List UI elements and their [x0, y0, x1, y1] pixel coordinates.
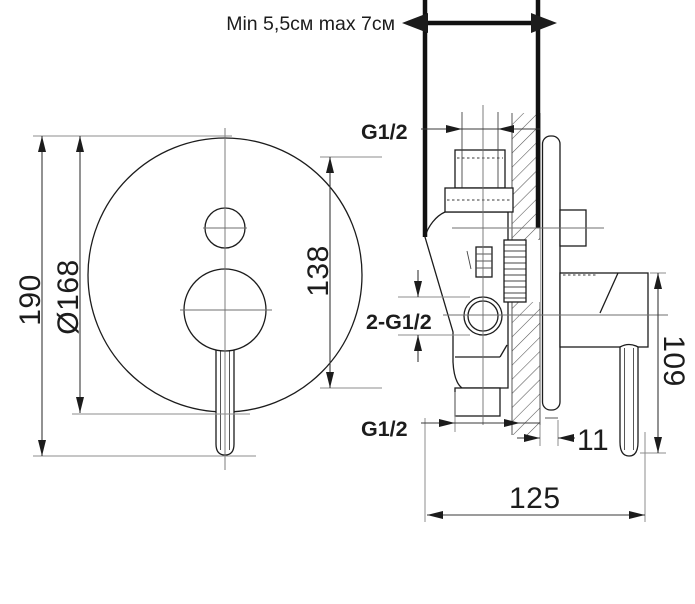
dim-label-2g12: 2-G1/2: [366, 310, 432, 334]
dim-label-g12-bottom: G1/2: [361, 417, 408, 441]
adjuster: [476, 247, 492, 277]
bottom-port: [455, 388, 500, 416]
dim-label-109: 109: [657, 335, 690, 387]
drawing-svg: Min 5,5см max 7см 190 Ø168 138 G1/2 2-G1…: [0, 0, 695, 604]
shower-mixer-technical-drawing: Min 5,5см max 7см 190 Ø168 138 G1/2 2-G1…: [0, 0, 695, 604]
plate-side: [543, 136, 561, 410]
dim-label-11: 11: [577, 424, 609, 457]
dim-label-138: 138: [302, 245, 335, 297]
dim-label-168: Ø168: [52, 259, 85, 334]
wall-section-lower: [512, 302, 540, 435]
valve-body: [425, 212, 508, 388]
handle-body: [560, 273, 648, 347]
dim-label-g12-top: G1/2: [361, 120, 408, 144]
dimensions: Min 5,5см max 7см 190 Ø168 138 G1/2 2-G1…: [14, 13, 690, 522]
dim-label-125: 125: [509, 482, 561, 515]
top-port: [455, 150, 505, 188]
handle-lever-side: [620, 345, 638, 457]
dim-label-190: 190: [14, 274, 47, 326]
pipe-depth-note: Min 5,5см max 7см: [226, 13, 395, 35]
